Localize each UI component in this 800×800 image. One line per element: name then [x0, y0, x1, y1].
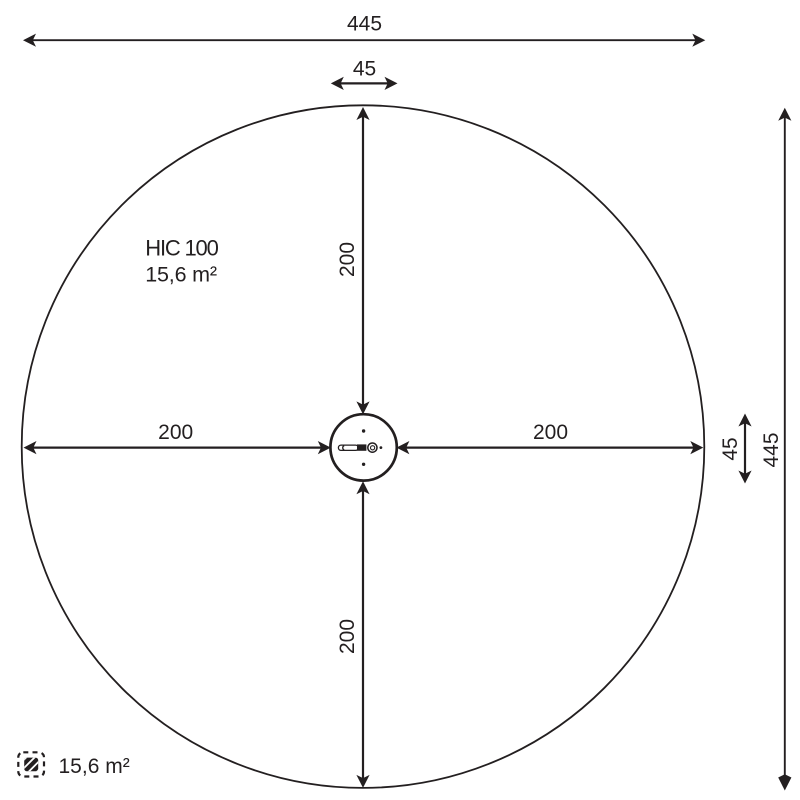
- svg-text:200: 200: [336, 619, 359, 654]
- svg-text:15,6 m²: 15,6 m²: [145, 262, 217, 286]
- svg-text:15,6 m²: 15,6 m²: [59, 755, 130, 778]
- svg-text:45: 45: [719, 437, 742, 460]
- svg-text:445: 445: [347, 13, 382, 36]
- svg-text:200: 200: [533, 421, 568, 444]
- svg-text:445: 445: [760, 432, 783, 467]
- svg-text:HIC 100: HIC 100: [145, 235, 218, 260]
- svg-text:200: 200: [158, 421, 193, 444]
- svg-text:200: 200: [336, 242, 359, 277]
- svg-text:45: 45: [353, 57, 376, 80]
